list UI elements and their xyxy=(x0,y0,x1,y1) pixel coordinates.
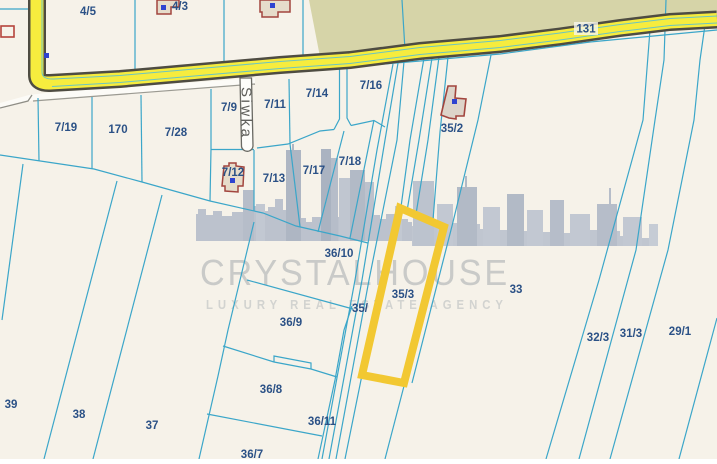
svg-text:7/13: 7/13 xyxy=(263,173,285,185)
svg-text:CRYSTALHOUSE: CRYSTALHOUSE xyxy=(200,252,510,293)
svg-text:38: 38 xyxy=(73,409,86,421)
svg-text:33: 33 xyxy=(510,284,523,296)
svg-text:29/1: 29/1 xyxy=(669,326,692,338)
svg-text:7/14: 7/14 xyxy=(306,88,329,100)
svg-text:36/9: 36/9 xyxy=(280,317,302,329)
svg-text:7/17: 7/17 xyxy=(303,165,325,177)
svg-text:170: 170 xyxy=(108,124,127,136)
svg-text:36/10: 36/10 xyxy=(325,248,354,260)
svg-text:35/: 35/ xyxy=(352,303,369,315)
svg-text:36/7: 36/7 xyxy=(241,449,263,459)
svg-text:7/9: 7/9 xyxy=(221,102,237,114)
svg-text:35/3: 35/3 xyxy=(392,289,414,301)
svg-text:7/28: 7/28 xyxy=(165,127,188,139)
svg-text:7/11: 7/11 xyxy=(264,99,286,111)
svg-text:7/19: 7/19 xyxy=(55,122,77,134)
svg-text:36/8: 36/8 xyxy=(260,384,283,396)
svg-text:36/11: 36/11 xyxy=(308,416,337,428)
svg-text:39: 39 xyxy=(5,399,18,411)
svg-text:32/3: 32/3 xyxy=(587,332,609,344)
svg-text:37: 37 xyxy=(146,420,159,432)
svg-text:131: 131 xyxy=(576,24,596,36)
svg-text:35/2: 35/2 xyxy=(441,123,463,135)
svg-text:4/5: 4/5 xyxy=(80,6,97,18)
svg-text:7/18: 7/18 xyxy=(339,156,362,168)
svg-text:7/12: 7/12 xyxy=(222,167,244,179)
svg-text:7/16: 7/16 xyxy=(360,80,382,92)
svg-text:31/3: 31/3 xyxy=(620,328,642,340)
svg-text:Siwka: Siwka xyxy=(238,87,255,140)
svg-text:4/3: 4/3 xyxy=(172,1,188,13)
